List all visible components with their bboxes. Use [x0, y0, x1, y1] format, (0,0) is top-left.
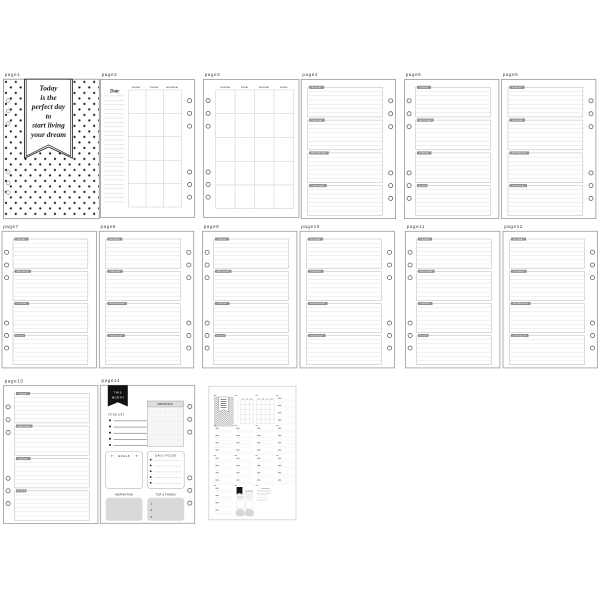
svg-text:THIS: THIS — [114, 391, 123, 395]
svg-text:start living: start living — [31, 121, 65, 130]
svg-text:page1: page1 — [5, 72, 21, 77]
svg-text:TO DO LIST: TO DO LIST — [108, 414, 124, 417]
svg-text:page9: page9 — [204, 224, 220, 229]
svg-text:page12: page12 — [504, 224, 523, 229]
svg-text:GOALS: GOALS — [118, 454, 130, 458]
svg-text:♥: ♥ — [111, 454, 113, 458]
svg-text:DAILY FOCUS: DAILY FOCUS — [155, 455, 176, 458]
svg-text:page3: page3 — [205, 72, 221, 77]
svg-text:page6: page6 — [503, 72, 519, 77]
svg-text:IMPORTANT: IMPORTANT — [158, 403, 174, 406]
svg-text:Today: Today — [39, 84, 58, 93]
svg-text:to: to — [46, 111, 52, 120]
svg-text:INSPIRATION: INSPIRATION — [115, 493, 133, 496]
svg-text:page4: page4 — [302, 72, 318, 77]
svg-text:MONTH: MONTH — [112, 396, 124, 400]
svg-text:your dream: your dream — [30, 130, 66, 139]
svg-text:page5: page5 — [406, 72, 422, 77]
svg-text:TOP 3 THINGS: TOP 3 THINGS — [156, 493, 176, 496]
svg-text:page8: page8 — [101, 224, 117, 229]
svg-text:page11: page11 — [407, 224, 425, 229]
svg-text:page14: page14 — [102, 378, 121, 383]
svg-text:♥: ♥ — [135, 454, 137, 458]
svg-text:page13: page13 — [5, 379, 24, 384]
svg-text:perfect day: perfect day — [31, 102, 66, 111]
svg-text:page7: page7 — [3, 224, 19, 229]
svg-text:is the: is the — [40, 93, 57, 102]
svg-text:page10: page10 — [301, 224, 320, 229]
svg-text:page2: page2 — [102, 72, 118, 77]
